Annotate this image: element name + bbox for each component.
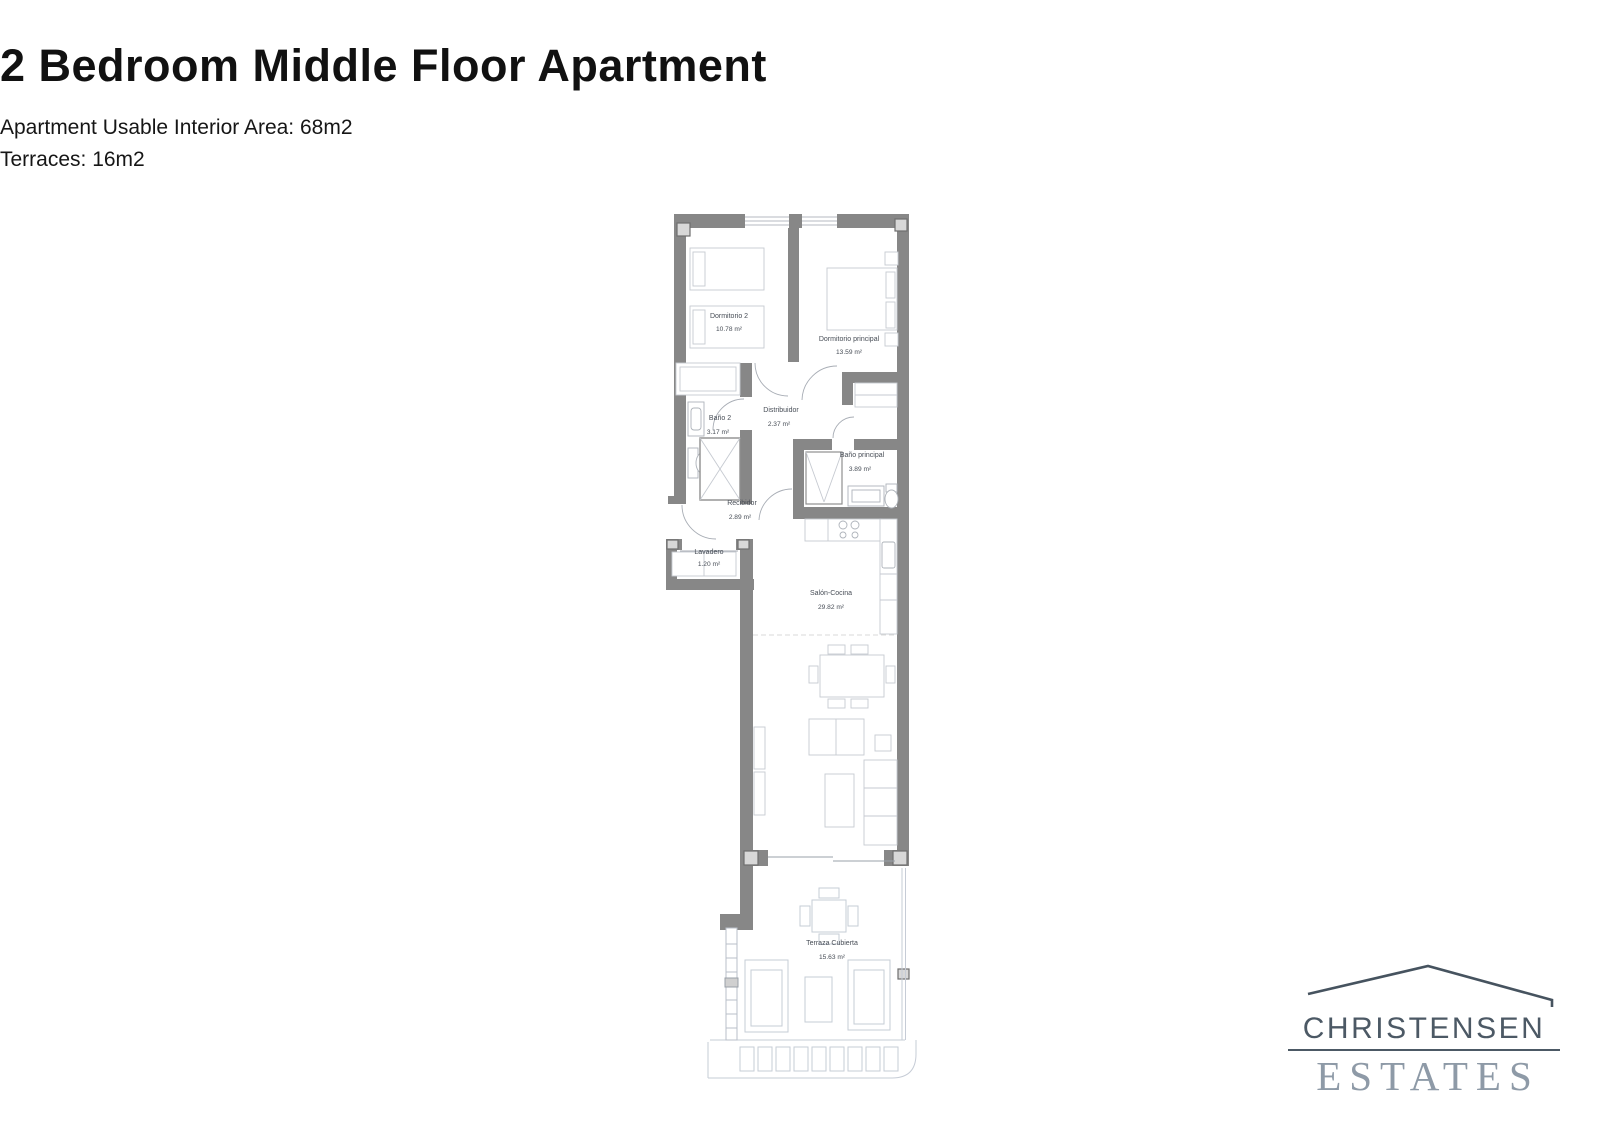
logo-divider (1288, 1049, 1560, 1051)
pillow-icon (693, 310, 705, 344)
logo-name-christensen: CHRISTENSEN (1288, 1012, 1560, 1046)
terrace-chair-icon (848, 906, 858, 926)
pillow-icon (886, 302, 895, 328)
terrace-right-edge (902, 868, 906, 1040)
agency-logo: CHRISTENSEN ESTATES (1288, 960, 1560, 1099)
entry-door-arc (682, 505, 716, 539)
terrace-table-icon (812, 900, 846, 932)
terrace-side-table-icon (805, 977, 832, 1022)
logo-roof-icon (1288, 960, 1560, 1012)
room-label-distribuidor: Distribuidor (763, 407, 799, 414)
room-area-distribuidor: 2.37 m² (768, 421, 791, 428)
chair-icon (851, 699, 868, 708)
kitchen-counter-right (880, 519, 897, 634)
side-table-icon (875, 735, 891, 751)
room-area-terraza: 15.63 m² (819, 954, 846, 961)
living-door-arc (759, 489, 792, 520)
room-label-recibidor: Recibidor (727, 500, 757, 507)
chair-icon (828, 645, 845, 654)
room-area-recibidor: 2.89 m² (729, 514, 752, 521)
room-label-bano-ppal: Baño principal (840, 452, 885, 459)
flyer-page: 2 Bedroom Middle Floor Apartment Apartme… (0, 0, 1600, 1131)
chair-icon (886, 666, 895, 683)
room-area-bano2: 3.17 m² (707, 429, 730, 436)
bedroom2-door-arc (755, 363, 788, 396)
room-label-salon-cocina: Salón-Cocina (810, 590, 852, 597)
terrace (708, 868, 916, 1078)
bathroom-principal-door-arc (833, 417, 854, 438)
logo-name-estates: ESTATES (1288, 1053, 1560, 1099)
balustrade (708, 1040, 916, 1078)
terrace-chair-icon (800, 906, 810, 926)
nightstand-icon (885, 333, 898, 346)
sofa-icon (809, 719, 864, 755)
room-label-lavadero: Lavadero (694, 549, 723, 556)
pillow-icon (886, 272, 895, 298)
subtitle-interior-area: Apartment Usable Interior Area: 68m2 (0, 112, 1600, 144)
dining-table-icon (820, 655, 884, 697)
subtitle-terraces: Terraces: 16m2 (0, 144, 1600, 176)
pillow-icon (693, 252, 705, 286)
room-labels: Dormitorio 2 10.78 m² Dormitorio princip… (694, 313, 884, 961)
wardrobe-inner (680, 367, 736, 391)
chaise-icon (864, 760, 897, 845)
page-title: 2 Bedroom Middle Floor Apartment (0, 40, 1600, 92)
room-area-lavadero: 1.20 m² (698, 561, 721, 568)
bedroom-principal-door-arc (802, 366, 837, 400)
room-label-dormitorio2: Dormitorio 2 (710, 313, 748, 320)
kitchen-sink-icon (882, 542, 895, 568)
room-area-dormitorio-ppal: 13.59 m² (836, 349, 863, 356)
tv-unit-icon (754, 727, 765, 769)
shower-icon (806, 452, 842, 504)
living-furniture (753, 635, 897, 861)
chair-icon (828, 699, 845, 708)
terrace-chair-icon (819, 888, 839, 898)
room-area-dormitorio2: 10.78 m² (716, 326, 743, 333)
bedroom-furniture (676, 248, 898, 407)
floor-plan: Dormitorio 2 10.78 m² Dormitorio princip… (652, 202, 922, 1082)
room-label-dormitorio-ppal: Dormitorio principal (819, 336, 880, 343)
room-label-bano2: Baño 2 (709, 415, 731, 422)
chair-icon (809, 666, 818, 683)
kitchen-fixtures (672, 519, 897, 634)
room-area-bano-ppal: 3.89 m² (849, 466, 872, 473)
page-subtitle: Apartment Usable Interior Area: 68m2 Ter… (0, 112, 1600, 176)
chair-icon (851, 645, 868, 654)
sliding-door-icon (768, 857, 895, 861)
nightstand-icon (885, 252, 898, 265)
room-label-terraza: Terraza Cubierta (806, 940, 858, 947)
room-area-salon-cocina: 29.82 m² (818, 604, 845, 611)
coffee-table-icon (825, 774, 854, 827)
cooktop-icon (839, 521, 847, 529)
tv-unit-icon (754, 772, 765, 815)
